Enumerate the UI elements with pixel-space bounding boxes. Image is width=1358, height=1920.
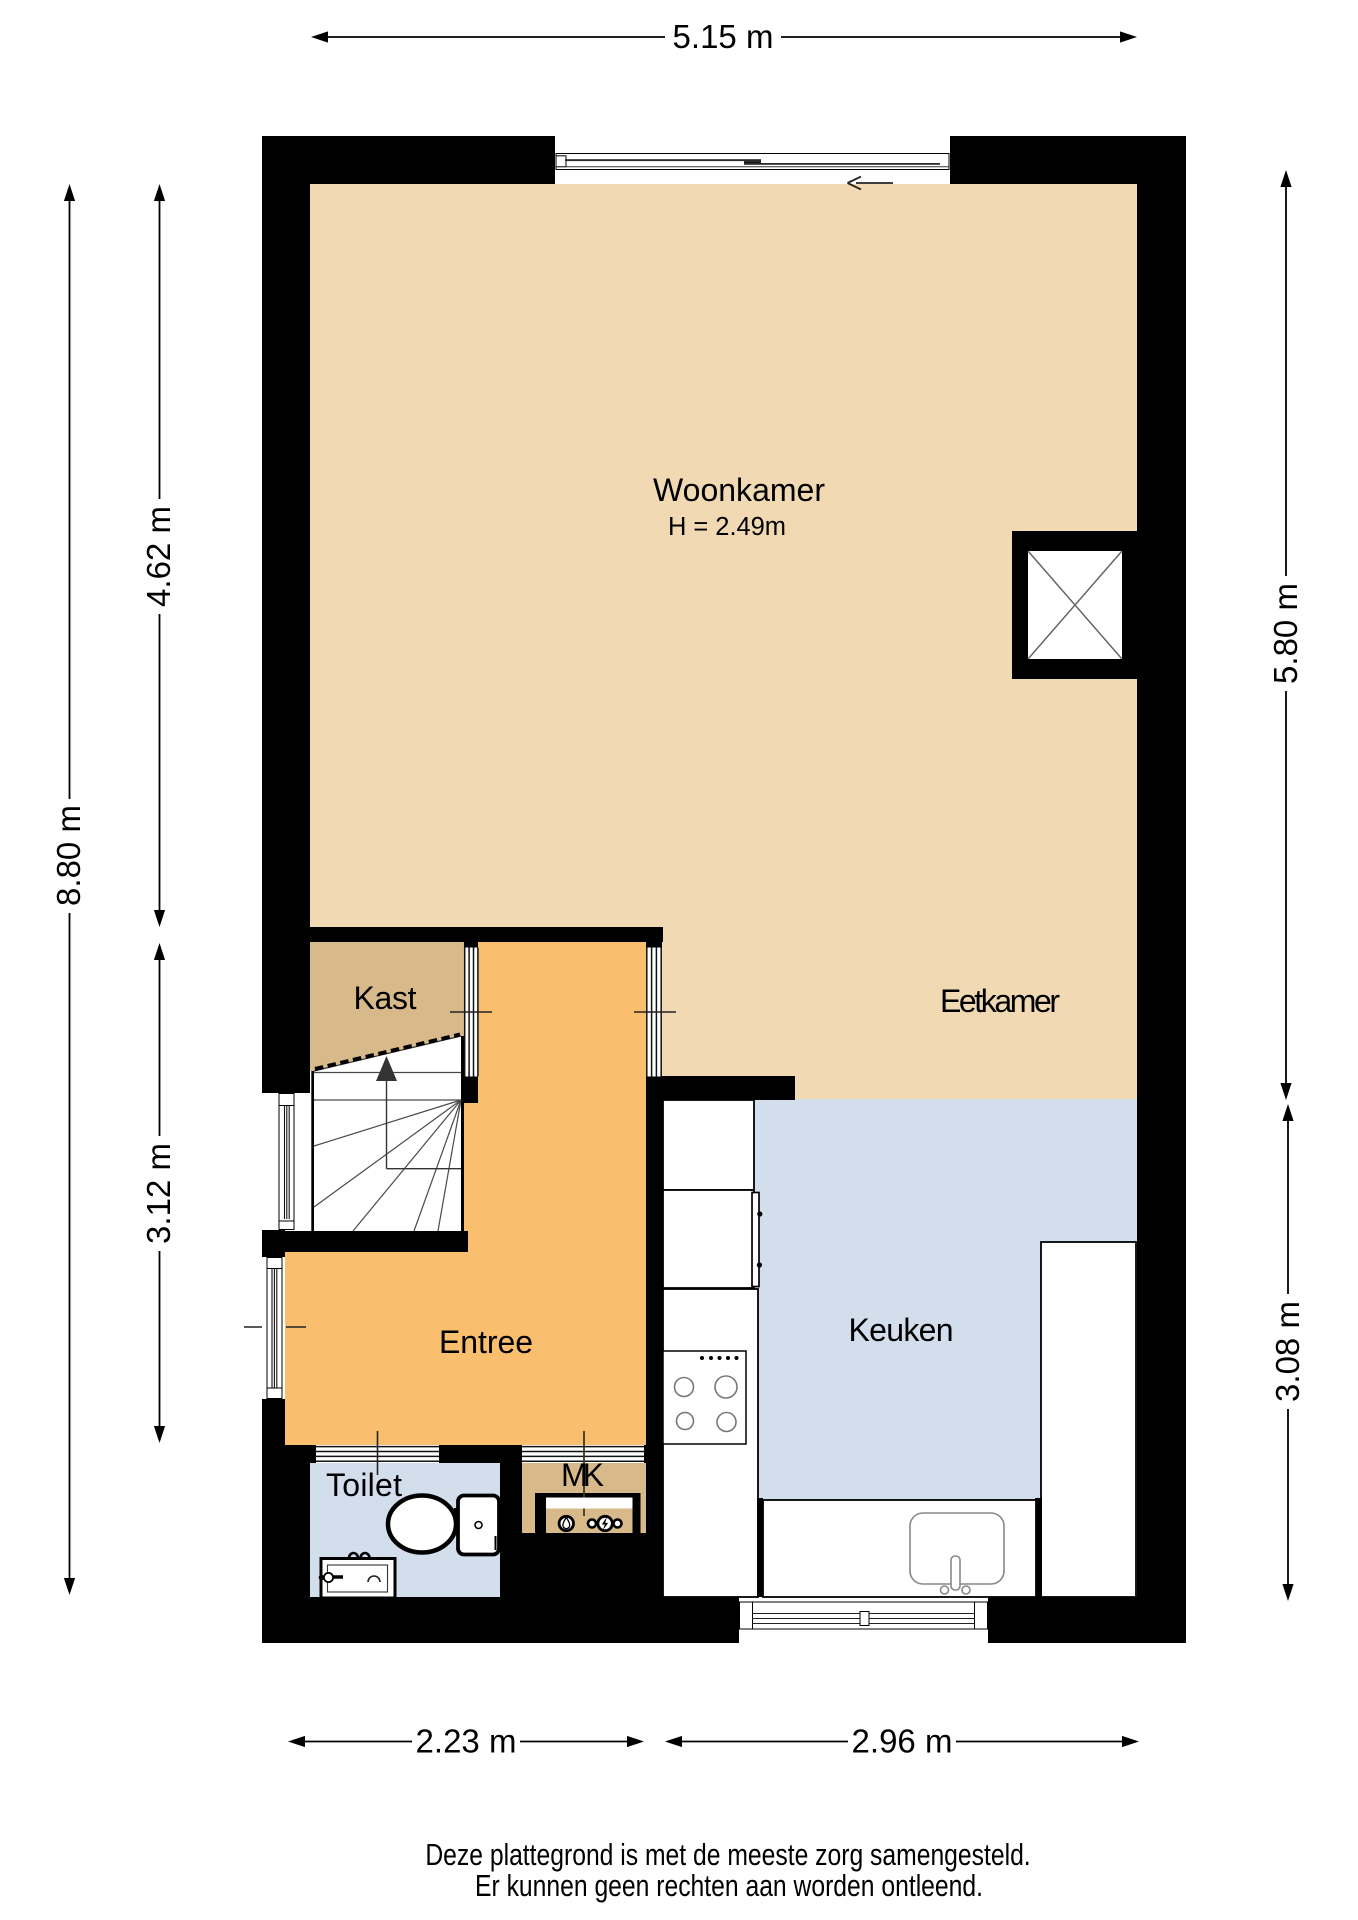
svg-text:5.15 m: 5.15 m [673,18,774,55]
svg-text:2.96 m: 2.96 m [852,1723,953,1760]
svg-text:8.80 m: 8.80 m [50,805,87,906]
svg-text:3.08 m: 3.08 m [1269,1301,1306,1402]
svg-text:Keuken: Keuken [849,1312,954,1348]
svg-text:4.62 m: 4.62 m [140,506,177,607]
svg-text:Toilet: Toilet [326,1467,402,1503]
svg-text:Er kunnen geen rechten aan wor: Er kunnen geen rechten aan worden ontlee… [475,1868,983,1902]
svg-text:2.23 m: 2.23 m [416,1723,517,1760]
svg-text:3.12 m: 3.12 m [140,1143,177,1244]
svg-text:Eetkamer: Eetkamer [940,983,1060,1019]
svg-text:Kast: Kast [354,980,417,1016]
svg-text:Entree: Entree [439,1324,533,1360]
svg-text:Deze plattegrond is met de mee: Deze plattegrond is met de meeste zorg s… [425,1837,1030,1871]
svg-text:5.80 m: 5.80 m [1267,583,1304,684]
svg-text:H = 2.49m: H = 2.49m [668,513,786,541]
svg-text:Woonkamer: Woonkamer [653,472,825,508]
svg-text:MK: MK [561,1457,604,1493]
